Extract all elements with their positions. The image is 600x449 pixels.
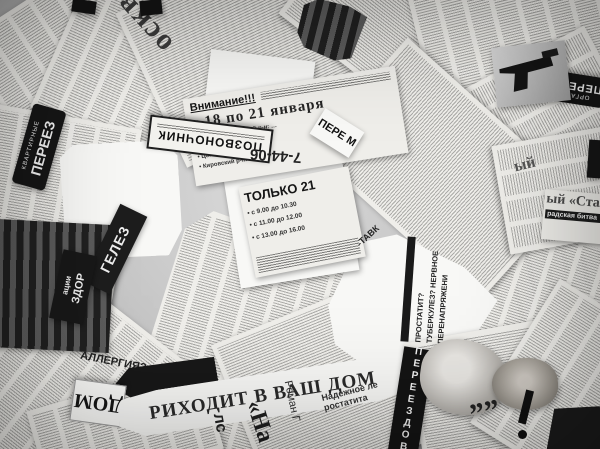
stalingrad-headline: ый «Стал радская битва [541,189,600,245]
dom-text: ДОМ [73,388,124,417]
ls-text: лс [210,412,230,434]
quote-marks-text: ”” [467,393,503,432]
ls-fragment: лс [209,412,230,434]
photo-collage: осква КВАРТИРНЫЕ ПЕРЕЕЗ Внимание!!! с 18… [0,0,600,449]
right-edge-tag [587,140,600,179]
exclamation-dot [518,430,527,439]
pereezdov-bottom-text: ПЕРЕЕЗДОВ [397,346,425,449]
phone-text: 7-44-06 [249,145,302,166]
masthead-box [139,0,162,16]
handgun-photo [491,40,571,107]
handgun-silhouette [491,40,571,107]
health-ad-column: ПРОСТАТИТ? ТУБЕРКУЛЕЗ? НЕРВНОЕ ПЕРЕНАПРЯ… [400,236,455,344]
bitva-text: радская битва [545,209,600,224]
dom-card: ДОМ [69,379,126,428]
phone-number: 7-44-06 [249,144,302,166]
